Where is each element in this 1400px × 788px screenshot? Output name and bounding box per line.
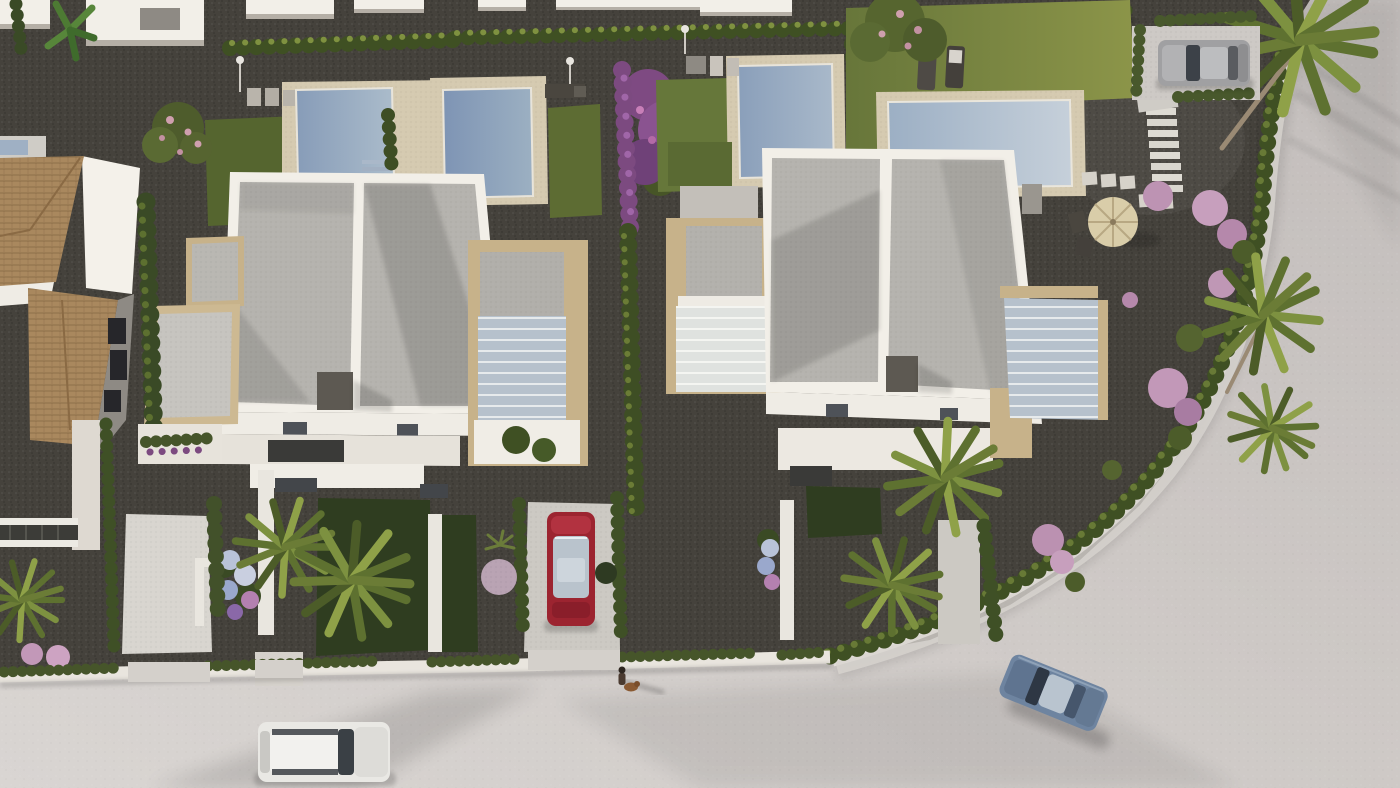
cypress-column (214, 504, 218, 616)
pool-equipment (686, 56, 706, 74)
pedestrian (619, 673, 626, 685)
gable-white-wall (82, 156, 140, 294)
hedge-1-2 (388, 115, 392, 172)
parking-bay (1132, 16, 1260, 100)
villa-b-porch-recess (790, 466, 832, 486)
villa-a-skylight-1 (283, 422, 307, 435)
villa-b-glass-canopy-left (676, 306, 768, 392)
villa-a-chimney (317, 372, 353, 410)
red-car (544, 512, 598, 632)
lawn-2 (548, 104, 602, 218)
entrance-walkway-b (938, 520, 980, 644)
villa-a-glass-annex (468, 240, 588, 466)
window-dark-3 (104, 390, 121, 412)
pool-1-water (296, 88, 394, 180)
villa-b-skylight-1 (826, 404, 848, 417)
dark-shrub (595, 562, 617, 584)
driveway-hedge-left (519, 504, 523, 634)
cypress-row-left-lower (106, 424, 114, 648)
white-car (254, 722, 396, 786)
villa-a-porch-recess (268, 440, 344, 462)
villa-a-pergola-upper (186, 236, 244, 308)
villa-b-chimney (886, 356, 918, 392)
front-grass-b (806, 486, 882, 538)
villa-a-skylight-2 (397, 424, 418, 436)
villa-b-glass-canopy-right (1004, 298, 1108, 420)
silver-suv (1156, 40, 1254, 90)
aerial-render-canvas (0, 0, 1400, 788)
suv-windshield (1186, 45, 1200, 81)
villa-b-patio (680, 186, 758, 220)
window-dark-1 (108, 318, 126, 344)
villa-a-front-wall (220, 412, 508, 436)
outdoor-shower-2 (566, 57, 574, 65)
villa-b-glass-annex-right (1000, 286, 1108, 420)
pink-shrub (21, 643, 43, 665)
driveway-cut-3 (528, 650, 620, 670)
white-car-windshield (338, 729, 354, 775)
driveway-hedge-right (617, 498, 621, 638)
carport-pergola (0, 518, 78, 547)
window-dark-2 (110, 350, 127, 380)
driveway-cut-1 (128, 662, 210, 682)
scene-svg (0, 0, 1400, 788)
outdoor-shower-3 (681, 25, 689, 33)
outdoor-shower-1 (236, 56, 244, 64)
ac-unit (1022, 184, 1042, 214)
driveway-cut-2 (255, 660, 303, 678)
villa-a-glass-canopy (478, 316, 566, 420)
villa-b-grass-patch (668, 142, 732, 186)
